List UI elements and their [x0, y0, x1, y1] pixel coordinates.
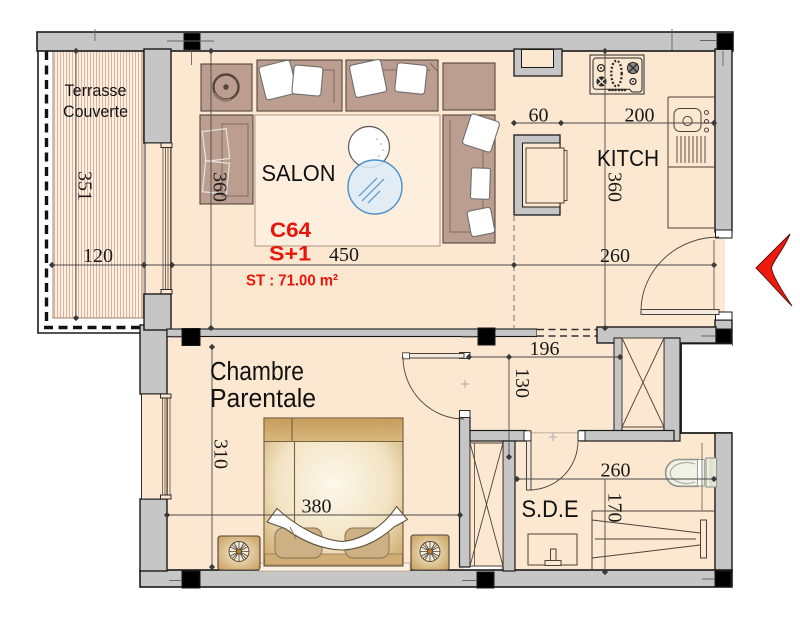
svg-text:Couverte: Couverte	[63, 103, 128, 121]
svg-text:351: 351	[74, 171, 96, 201]
svg-text:C64: C64	[270, 219, 311, 242]
svg-text:SALON: SALON	[262, 160, 336, 186]
svg-text:310: 310	[210, 439, 232, 469]
svg-text:260: 260	[601, 460, 631, 482]
svg-text:KITCH: KITCH	[597, 145, 659, 171]
svg-text:Chambre: Chambre	[210, 358, 304, 386]
svg-text:130: 130	[511, 368, 533, 398]
svg-text:450: 450	[329, 244, 359, 266]
svg-text:200: 200	[625, 105, 655, 127]
svg-text:Parentale: Parentale	[210, 385, 316, 413]
svg-text:360: 360	[209, 172, 231, 202]
svg-text:360: 360	[604, 172, 626, 202]
svg-text:60: 60	[529, 105, 549, 127]
svg-text:170: 170	[604, 493, 626, 523]
svg-text:ST : 71.00 m²: ST : 71.00 m²	[246, 273, 338, 290]
svg-text:S+1: S+1	[269, 243, 311, 266]
svg-text:380: 380	[302, 496, 332, 518]
svg-text:Terrasse: Terrasse	[65, 82, 127, 100]
svg-text:120: 120	[83, 245, 113, 267]
svg-text:196: 196	[530, 338, 560, 360]
svg-text:260: 260	[600, 245, 630, 267]
svg-text:S.D.E: S.D.E	[522, 496, 579, 523]
